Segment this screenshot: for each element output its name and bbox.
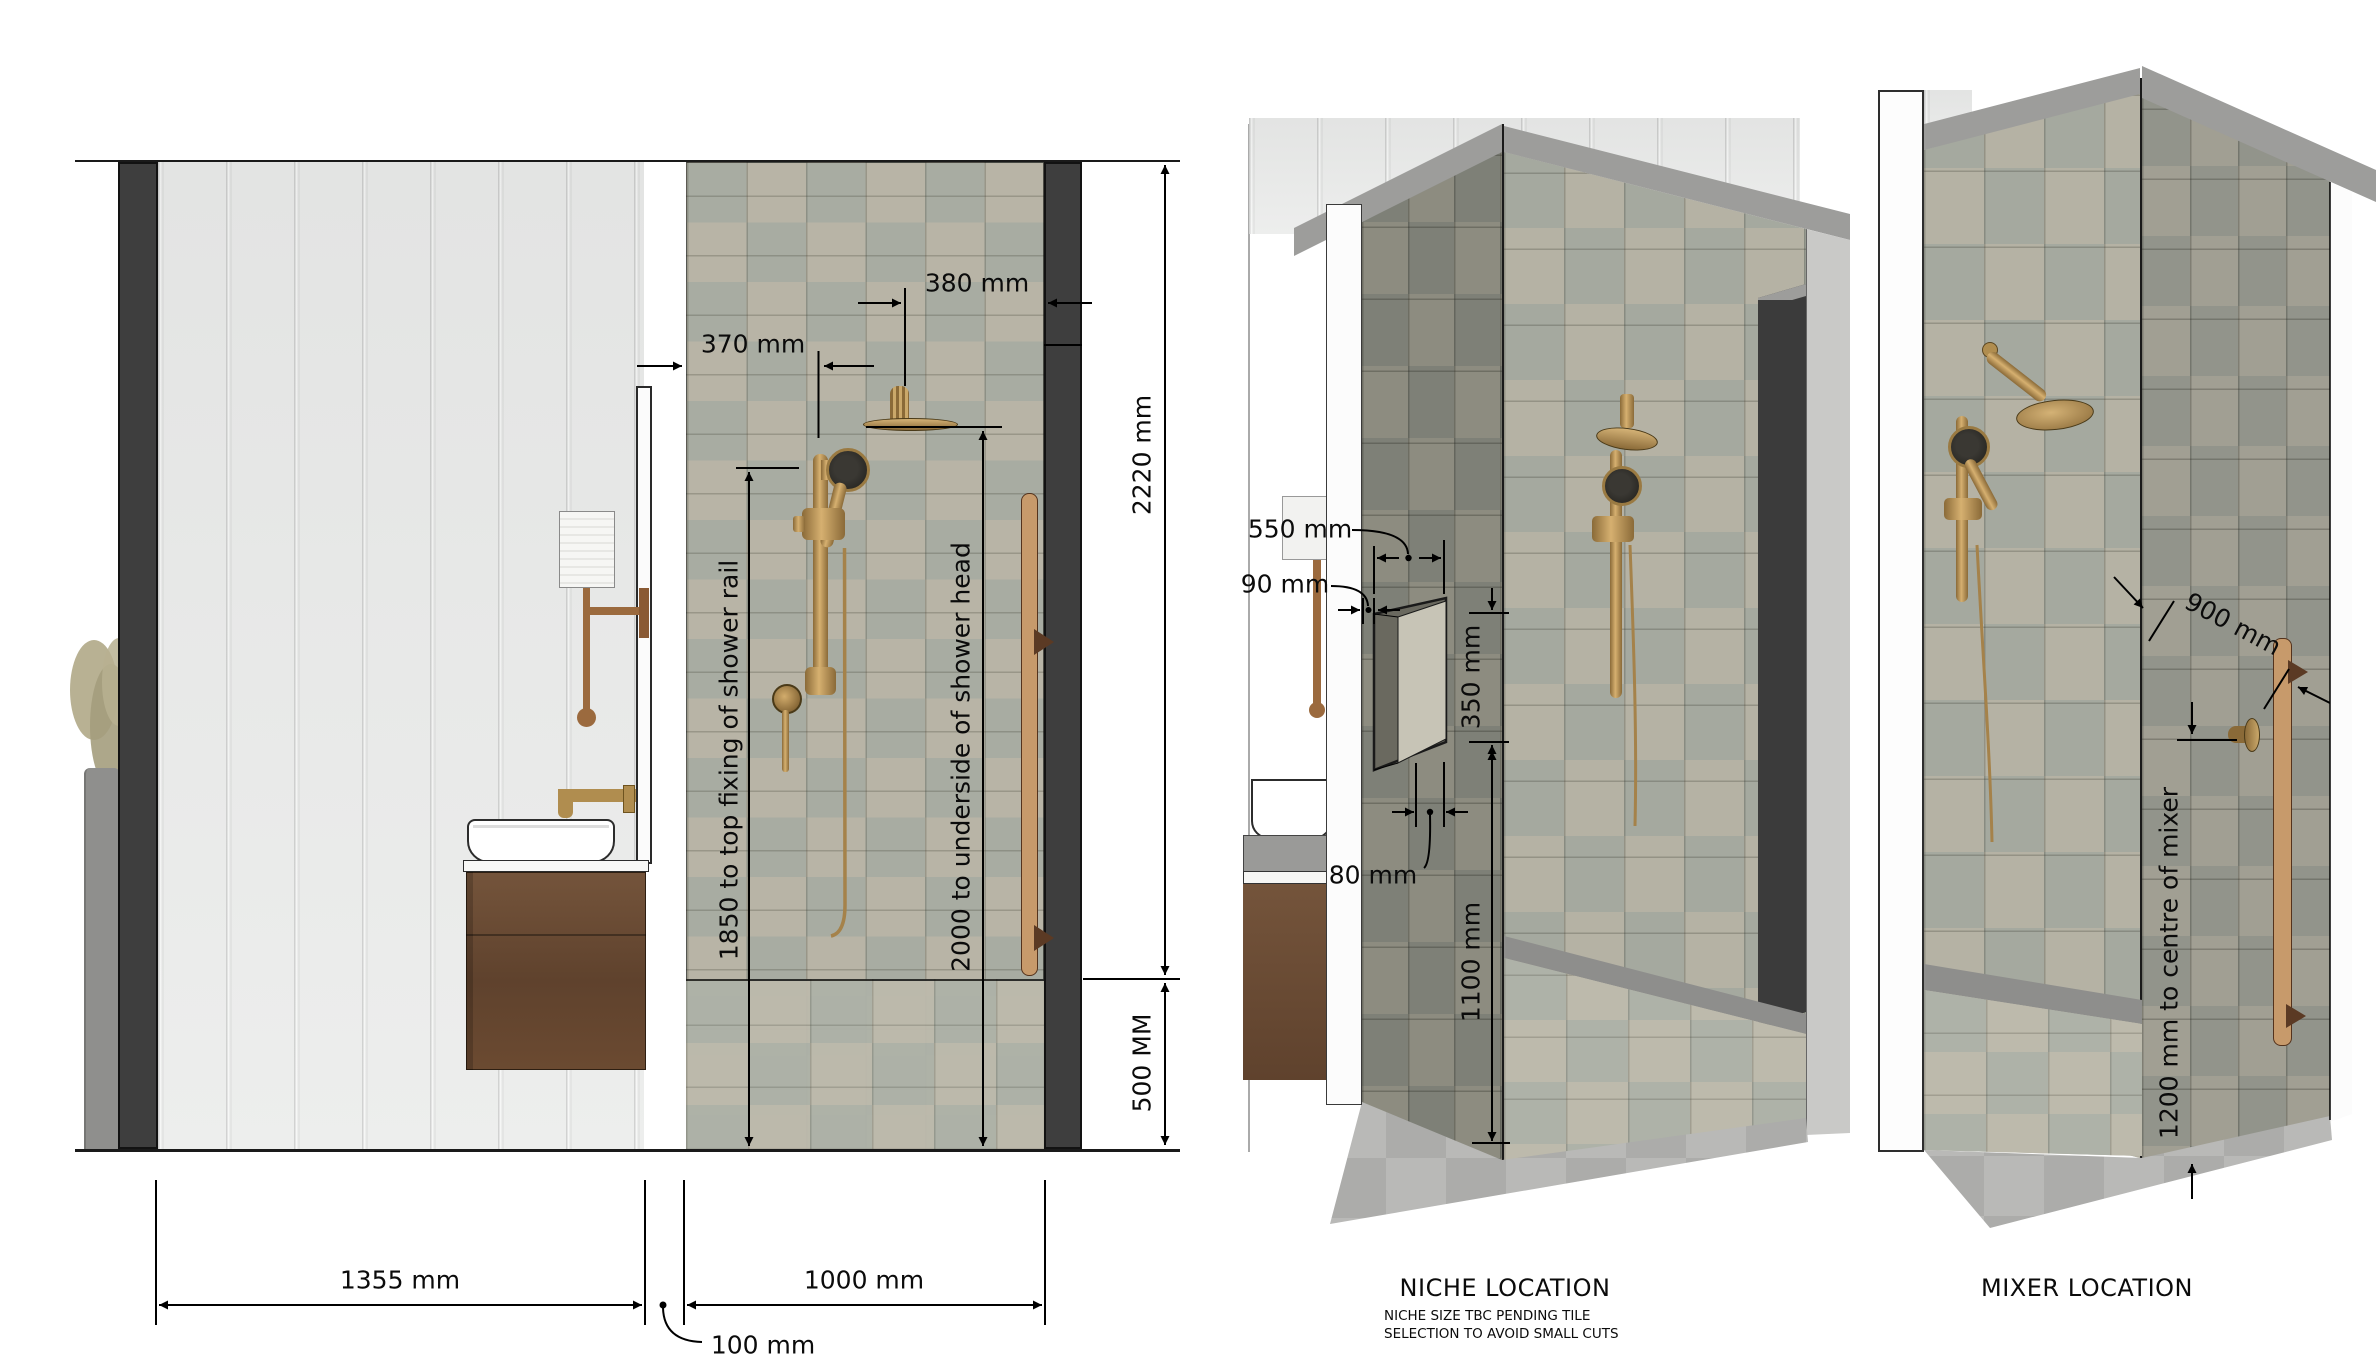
wall-sconce-backplate bbox=[639, 588, 649, 638]
niche-counter-edge bbox=[1243, 871, 1332, 884]
rail-slider bbox=[802, 508, 845, 540]
mixer-view-title: MIXER LOCATION bbox=[1981, 1274, 2193, 1302]
dim-1355-label: 1355 mm bbox=[340, 1268, 460, 1293]
wall-section-right bbox=[1044, 162, 1082, 1149]
niche-view-note-1: NICHE SIZE TBC PENDING TILE bbox=[1384, 1308, 1590, 1324]
mixer-wall-edge bbox=[2330, 180, 2352, 1122]
dim-2220-label: 2220 mm bbox=[1130, 395, 1155, 515]
dim-350-label: 350 mm bbox=[1459, 625, 1484, 729]
wall-section-joint bbox=[1044, 344, 1082, 346]
niche-sconce-finial bbox=[1309, 702, 1325, 718]
mixer-towel-rail bbox=[2273, 638, 2292, 1046]
niche-feature-wall bbox=[1758, 270, 1806, 1032]
niche-mirror-edge bbox=[1326, 204, 1362, 1105]
dim-550-label: 550 mm bbox=[1248, 517, 1352, 542]
vanity-cabinet-stile bbox=[466, 872, 473, 1070]
mixer-valve-flange bbox=[2244, 718, 2260, 752]
basin-tap-outlet bbox=[558, 789, 573, 818]
rail-slider-knob bbox=[793, 516, 805, 532]
mixer-rail-slider bbox=[1944, 498, 1982, 520]
niche-outer-wall bbox=[1806, 229, 1850, 1135]
floor-line bbox=[75, 1149, 1180, 1152]
dim-380-label: 380 mm bbox=[925, 271, 1029, 296]
niche-counter bbox=[1243, 835, 1332, 873]
wall-sconce-arm bbox=[589, 607, 646, 615]
towel-rail-bracket bbox=[1034, 925, 1054, 951]
dim-1000-label: 1000 mm bbox=[804, 1268, 924, 1293]
dim-2000-label: 2000 to underside of shower head bbox=[949, 542, 974, 972]
vanity-counter bbox=[463, 860, 649, 872]
dim-370-label: 370 mm bbox=[701, 332, 805, 357]
vanity-basin-rim bbox=[473, 825, 609, 828]
niche-corner-line bbox=[1502, 124, 1504, 1164]
shower-mixer-lever bbox=[782, 710, 789, 772]
dim-1200-label: 1200 mm to centre of mixer bbox=[2157, 787, 2182, 1139]
dim-500-label: 500 MM bbox=[1130, 1014, 1155, 1113]
basin-tap-backplate bbox=[623, 785, 635, 813]
towel-rail bbox=[1021, 493, 1038, 976]
niche-shower-arm bbox=[1620, 394, 1634, 428]
vanity-cabinet bbox=[466, 872, 646, 1070]
towel-rail-bracket bbox=[1034, 629, 1054, 655]
niche-view-title: NICHE LOCATION bbox=[1400, 1274, 1611, 1302]
shower-hob-band bbox=[686, 979, 1044, 1150]
hand-shower-head bbox=[826, 448, 870, 492]
niche-rail-slider bbox=[1592, 516, 1634, 542]
dim-1100-label: 1100 mm bbox=[1459, 902, 1484, 1022]
rain-shower-head-edge bbox=[863, 418, 958, 431]
mixer-corner-line bbox=[2140, 78, 2142, 1158]
niche-basin bbox=[1251, 779, 1332, 839]
wall-sconce-shade bbox=[559, 511, 615, 588]
niche-cabinet bbox=[1243, 884, 1332, 1080]
dim-90-label: 90 mm bbox=[1241, 572, 1329, 597]
mixer-towel-rail-bracket bbox=[2286, 1004, 2306, 1028]
shower-rail bbox=[813, 454, 828, 690]
ceiling-line bbox=[75, 160, 1180, 162]
niche-view-note-2: SELECTION TO AVOID SMALL CUTS bbox=[1384, 1326, 1619, 1342]
dim-1850-label: 1850 to top fixing of shower rail bbox=[717, 560, 742, 960]
dim-100-label: 100 mm bbox=[711, 1333, 815, 1358]
niche-hand-shower bbox=[1602, 466, 1642, 506]
vanity-cabinet-seam bbox=[466, 934, 646, 936]
mixer-towel-rail-bracket bbox=[2288, 660, 2308, 684]
drawing-sheet: 370 mm 380 mm 1850 to top fixing of show… bbox=[0, 0, 2376, 1366]
shower-rail-foot bbox=[805, 667, 836, 695]
plant-vase bbox=[84, 768, 120, 1149]
mixer-pilaster bbox=[1878, 90, 1924, 1152]
elevation-view bbox=[0, 0, 1200, 1366]
wall-section-left bbox=[118, 162, 158, 1149]
dim-80-label: 80 mm bbox=[1329, 863, 1417, 888]
wall-sconce-finial bbox=[577, 708, 596, 727]
